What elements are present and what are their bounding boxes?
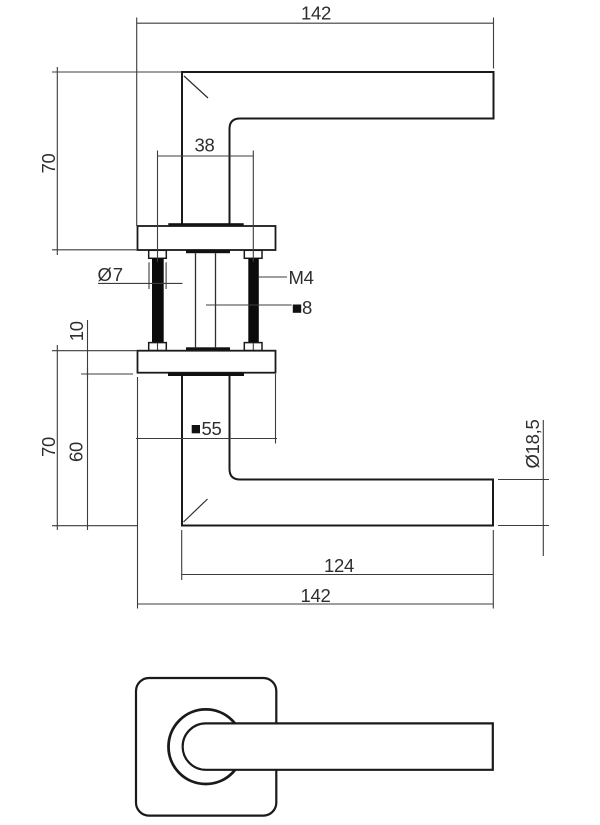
svg-text:142: 142 — [301, 3, 331, 24]
svg-text:142: 142 — [301, 585, 331, 606]
svg-text:70: 70 — [38, 437, 59, 457]
svg-text:70: 70 — [38, 154, 59, 174]
svg-text:M4: M4 — [289, 267, 314, 288]
svg-text:124: 124 — [324, 555, 354, 576]
svg-text:38: 38 — [195, 135, 215, 156]
svg-text:Ø7: Ø7 — [98, 264, 124, 285]
svg-text:60: 60 — [66, 442, 87, 462]
svg-text:55: 55 — [202, 418, 222, 439]
svg-text:8: 8 — [302, 297, 312, 318]
svg-text:10: 10 — [66, 321, 87, 341]
svg-text:Ø18,5: Ø18,5 — [522, 420, 543, 469]
